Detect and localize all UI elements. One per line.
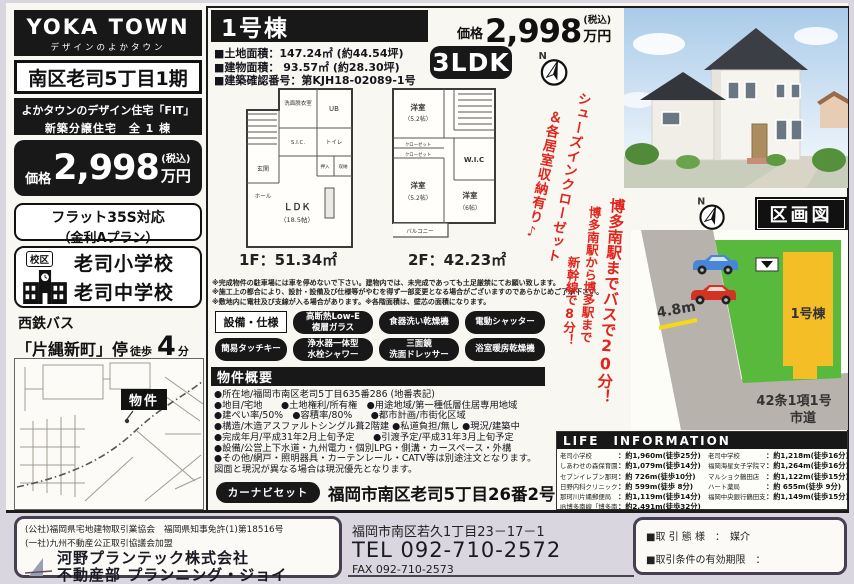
building-title: 1号棟 [221, 9, 289, 43]
room-ldk: ＬＤＫ [283, 202, 310, 213]
price-value: 2,998 [53, 148, 159, 188]
divider-vertical-left-column [206, 6, 208, 511]
brand-title: YOKA TOWN [14, 15, 202, 39]
room-senmen: 洗面脱衣室 [284, 99, 312, 107]
carnavi-address: 福岡市南区老司5丁目26番2号 [328, 481, 555, 505]
room-hall: ホール [255, 193, 272, 200]
compass-icon-lot: N [694, 194, 728, 232]
price-box-left: 価格 2,998 (税込) 万円 [14, 140, 202, 196]
price-tax-center: (税込) [583, 12, 611, 26]
license-line1: (公社)福岡県宅地建物取引業協会 福岡県知事免許(1)第18516号 [25, 522, 331, 535]
spec-confirmation-number: ■建築確認番号：第KJH18-02089-1号 [214, 74, 416, 88]
overview-title-bar: 物件概要 [211, 367, 545, 386]
room2-yoshitsu1-size: （5.2帖） [404, 115, 432, 123]
room2-yoshitsu3: 洋室 [463, 190, 478, 200]
floor-plan-2f: 洋室 （5.2帖） クローゼット クローゼット W.I.C 洋室 （5.2帖） … [392, 88, 496, 238]
room-toilet: トイレ [326, 140, 343, 146]
room-ldk-size: （18.5帖） [280, 215, 314, 224]
school-elementary: 老司小学校 [74, 249, 174, 276]
house-exterior-render [624, 8, 848, 188]
overview-title: 物件概要 [217, 367, 273, 386]
transaction-type: ■取 引 態 様 ： 媒介 [646, 528, 834, 543]
overview-list: ●所在地/福岡市南区老司5丁目635番286 (地番表記) ●地目/宅地 ●土地… [214, 390, 546, 476]
floor-plan-1f: 洗面脱衣室 UB トイレ S.I.C. 押入 収納 玄関 ホール ＬＤＫ （18… [239, 88, 353, 248]
life-row: 日野内科クリニック：約 599m(徒歩 8分) [560, 482, 708, 492]
life-information-title: LIFE INFORMATION [557, 432, 847, 449]
disclaimer-notes: ※完成物件の駐車場には車を停めないで下さい。建物内では、未完成であっても土足厳禁… [212, 279, 548, 307]
disclaimer-line1: ※完成物件の駐車場には車を停めないで下さい。建物内では、未完成であっても土足厳禁… [212, 279, 548, 288]
life-row: 老司中学校：約1,218m(徒歩16分) [708, 451, 844, 461]
road-note-line2: 市道 [790, 410, 816, 426]
catch-copy-box: よかタウンのデザイン住宅「FIT」 新築分譲住宅 全 1 棟 [14, 98, 202, 135]
room-sic: S.I.C. [291, 140, 305, 146]
map-property-marker: 物件 [121, 389, 167, 410]
compass-icon: N [536, 48, 570, 88]
entrance-marker-icon [756, 258, 778, 271]
disclaimer-line2: ※施工上の都合により、設計・設備及び仕様等がやむを得ず一部変更となる場合がござい… [212, 288, 548, 297]
company-division: 不動産部 プランニング・ジョイ [57, 567, 287, 584]
room-oshiire: 押入 [321, 163, 330, 170]
room2-wic: W.I.C [464, 156, 484, 164]
price-line-center: 価格 2,998 (税込) 万円 [457, 12, 611, 47]
room-shuno: 収納 [339, 163, 348, 170]
room2-yoshitsu3-size: （6帖） [459, 204, 481, 212]
price-unit: 万円 [161, 165, 191, 186]
price-label-center: 価格 [457, 23, 483, 42]
area-title-box: 南区老司5丁目1期 [14, 60, 202, 94]
brand-subtitle: デザインのよかタウン [14, 41, 202, 53]
phone-number: TEL 092-710-2572 [352, 538, 561, 562]
spec-building-area: ■建物面積： 93.57㎡ (約28.30坪) [214, 61, 416, 75]
street-map-drawing [15, 359, 204, 510]
room2-yoshitsu2: 洋室 [411, 180, 426, 190]
price-unit-center: 万円 [583, 26, 611, 46]
lot-plan-title: 区画図 [757, 199, 845, 229]
room2-yoshitsu2-size: （5.2帖） [404, 194, 432, 202]
school-district-box: 校区 老司小学校 老司中学校 [14, 246, 202, 308]
floor-plan-type-badge: 3LDK [430, 46, 512, 79]
price-value-center: 2,998 [485, 15, 581, 47]
room-genkan: 玄関 [257, 165, 269, 173]
room2-yoshitsu1: 洋室 [411, 102, 426, 112]
area-title: 南区老司5丁目1期 [28, 64, 187, 91]
room2-closet2: クローゼット [405, 151, 431, 158]
life-row: ハート薬局：約 655m(徒歩 9分) [708, 482, 844, 492]
floor2-area-label: 2F：42.23㎡ [408, 249, 506, 270]
building-specs: ■土地面積：147.24㎡ (約44.54坪) ■建物面積： 93.57㎡ (約… [214, 47, 416, 88]
license-line2: (一社)九州不動産公正取引協議会加盟 [25, 536, 331, 549]
equipment-bathroom-dryer: 浴室暖房乾燥機 [465, 338, 545, 361]
equipment-lowe-glass: 高断熱Low-E複層ガラス [293, 311, 373, 334]
equipment-dishwasher: 食器洗い乾燥機 [379, 311, 459, 334]
spec-land-area: ■土地面積：147.24㎡ (約44.54坪) [214, 47, 416, 61]
equipment-touch-key: 簡易タッチキー [215, 338, 287, 361]
life-information-box: LIFE INFORMATION 老司小学校：約1,960m(徒歩25分) しあ… [556, 431, 848, 510]
school-icon [23, 270, 67, 304]
overview-note: 図面と現況が異なる場合は現況優先となります。 [214, 465, 546, 476]
price-label: 価格 [25, 168, 51, 187]
life-row: 老司小学校：約1,960m(徒歩25分) [560, 451, 708, 461]
company-info-box: (公社)福岡県宅地建物取引業協会 福岡県知事免許(1)第18516号 (一社)九… [14, 516, 342, 578]
flat35-line2: （金利Aプラン） [16, 227, 200, 246]
disclaimer-line3: ※敷地内に電柱及び支線が入る場合があります。※各階面積は、壁芯の面積になります。 [212, 298, 548, 307]
life-row: 福岡海星女子学院マリア幼稚園：約1,264m(徒歩16分) [708, 461, 844, 471]
company-name: 河野プランテック株式会社 [57, 550, 287, 567]
bus-walk-label: 徒歩 [130, 343, 152, 359]
school-junior-high: 老司中学校 [74, 278, 174, 305]
floor1-area-label: 1F：51.34㎡ [239, 249, 337, 270]
life-row: しあわせの森保育園：約1,079m(徒歩14分) [560, 461, 708, 471]
bus-stop-name: 「片縄新町」停 [16, 336, 128, 360]
room-ub: UB [329, 105, 339, 113]
equipment-mirror-dresser: 三面鏡洗面ドレッサー [379, 338, 459, 361]
life-row: JR博多南線「博多南」駅：約2,491m(徒歩32分) [560, 502, 708, 512]
catch-line1: よかタウンのデザイン住宅「FIT」 [14, 102, 202, 118]
carnavi-badge: カーナビセット [216, 482, 320, 503]
transaction-box: ■取 引 態 様 ： 媒介 ■取引条件の有効期限 ： [633, 517, 847, 575]
life-row: 福岡中央銀行鶴田支店：約1,149m(徒歩15分) [708, 492, 844, 502]
life-row: マルショク鶴田店：約1,122m(徒歩15分) [708, 472, 844, 482]
lot-plan-drawing: 1号棟 4.8m 42条1項1号 市道 [631, 230, 848, 430]
company-logo [25, 554, 53, 580]
bus-company: 西鉄バス [18, 313, 74, 333]
road-note-line1: 42条1項1号 [756, 393, 831, 409]
room2-closet1: クローゼット [405, 141, 431, 148]
footer-middle-divider [348, 575, 634, 577]
neighborhood-map: 物件 [14, 358, 204, 510]
equipment-title-box: 設備・仕様 [215, 311, 287, 333]
lot-building-label: 1号棟 [790, 306, 826, 322]
school-district-badge: 校区 [26, 251, 53, 267]
life-row: 那珂川片縄郵便局：約1,119m(徒歩14分) [560, 492, 708, 502]
building-title-bar: 1号棟 [211, 10, 428, 42]
overview-completion: ●完成年月/平成31年2月上旬予定 ●引渡予定/平成31年3月上旬予定 [214, 433, 546, 444]
room2-balcony: バルコニー [406, 228, 433, 235]
compass-n-label-lot: N [697, 197, 705, 208]
brand-banner: YOKA TOWN デザインのよかタウン [14, 10, 202, 56]
transaction-expiry: ■取引条件の有効期限 ： [646, 551, 834, 566]
price-tax-note: (税込) [161, 150, 190, 165]
equipment-electric-shutter: 電動シャッター [465, 311, 545, 334]
flyer-page: YOKA TOWN デザインのよかタウン 南区老司5丁目1期 よかタウンのデザイ… [0, 0, 854, 584]
bus-minutes-unit: 分 [178, 343, 189, 359]
compass-n-label: N [539, 51, 547, 62]
catch-line2: 新築分譲住宅 全 1 棟 [14, 120, 202, 136]
flat35-box: フラット35S対応 （金利Aプラン） [14, 203, 202, 241]
equipment-water-purifier: 浄水器一体型水栓シャワー [293, 338, 373, 361]
flat35-line1: フラット35S対応 [16, 207, 200, 227]
life-row: セブンイレブン那珂川片縄西：約 726m(徒歩10分) [560, 472, 708, 482]
